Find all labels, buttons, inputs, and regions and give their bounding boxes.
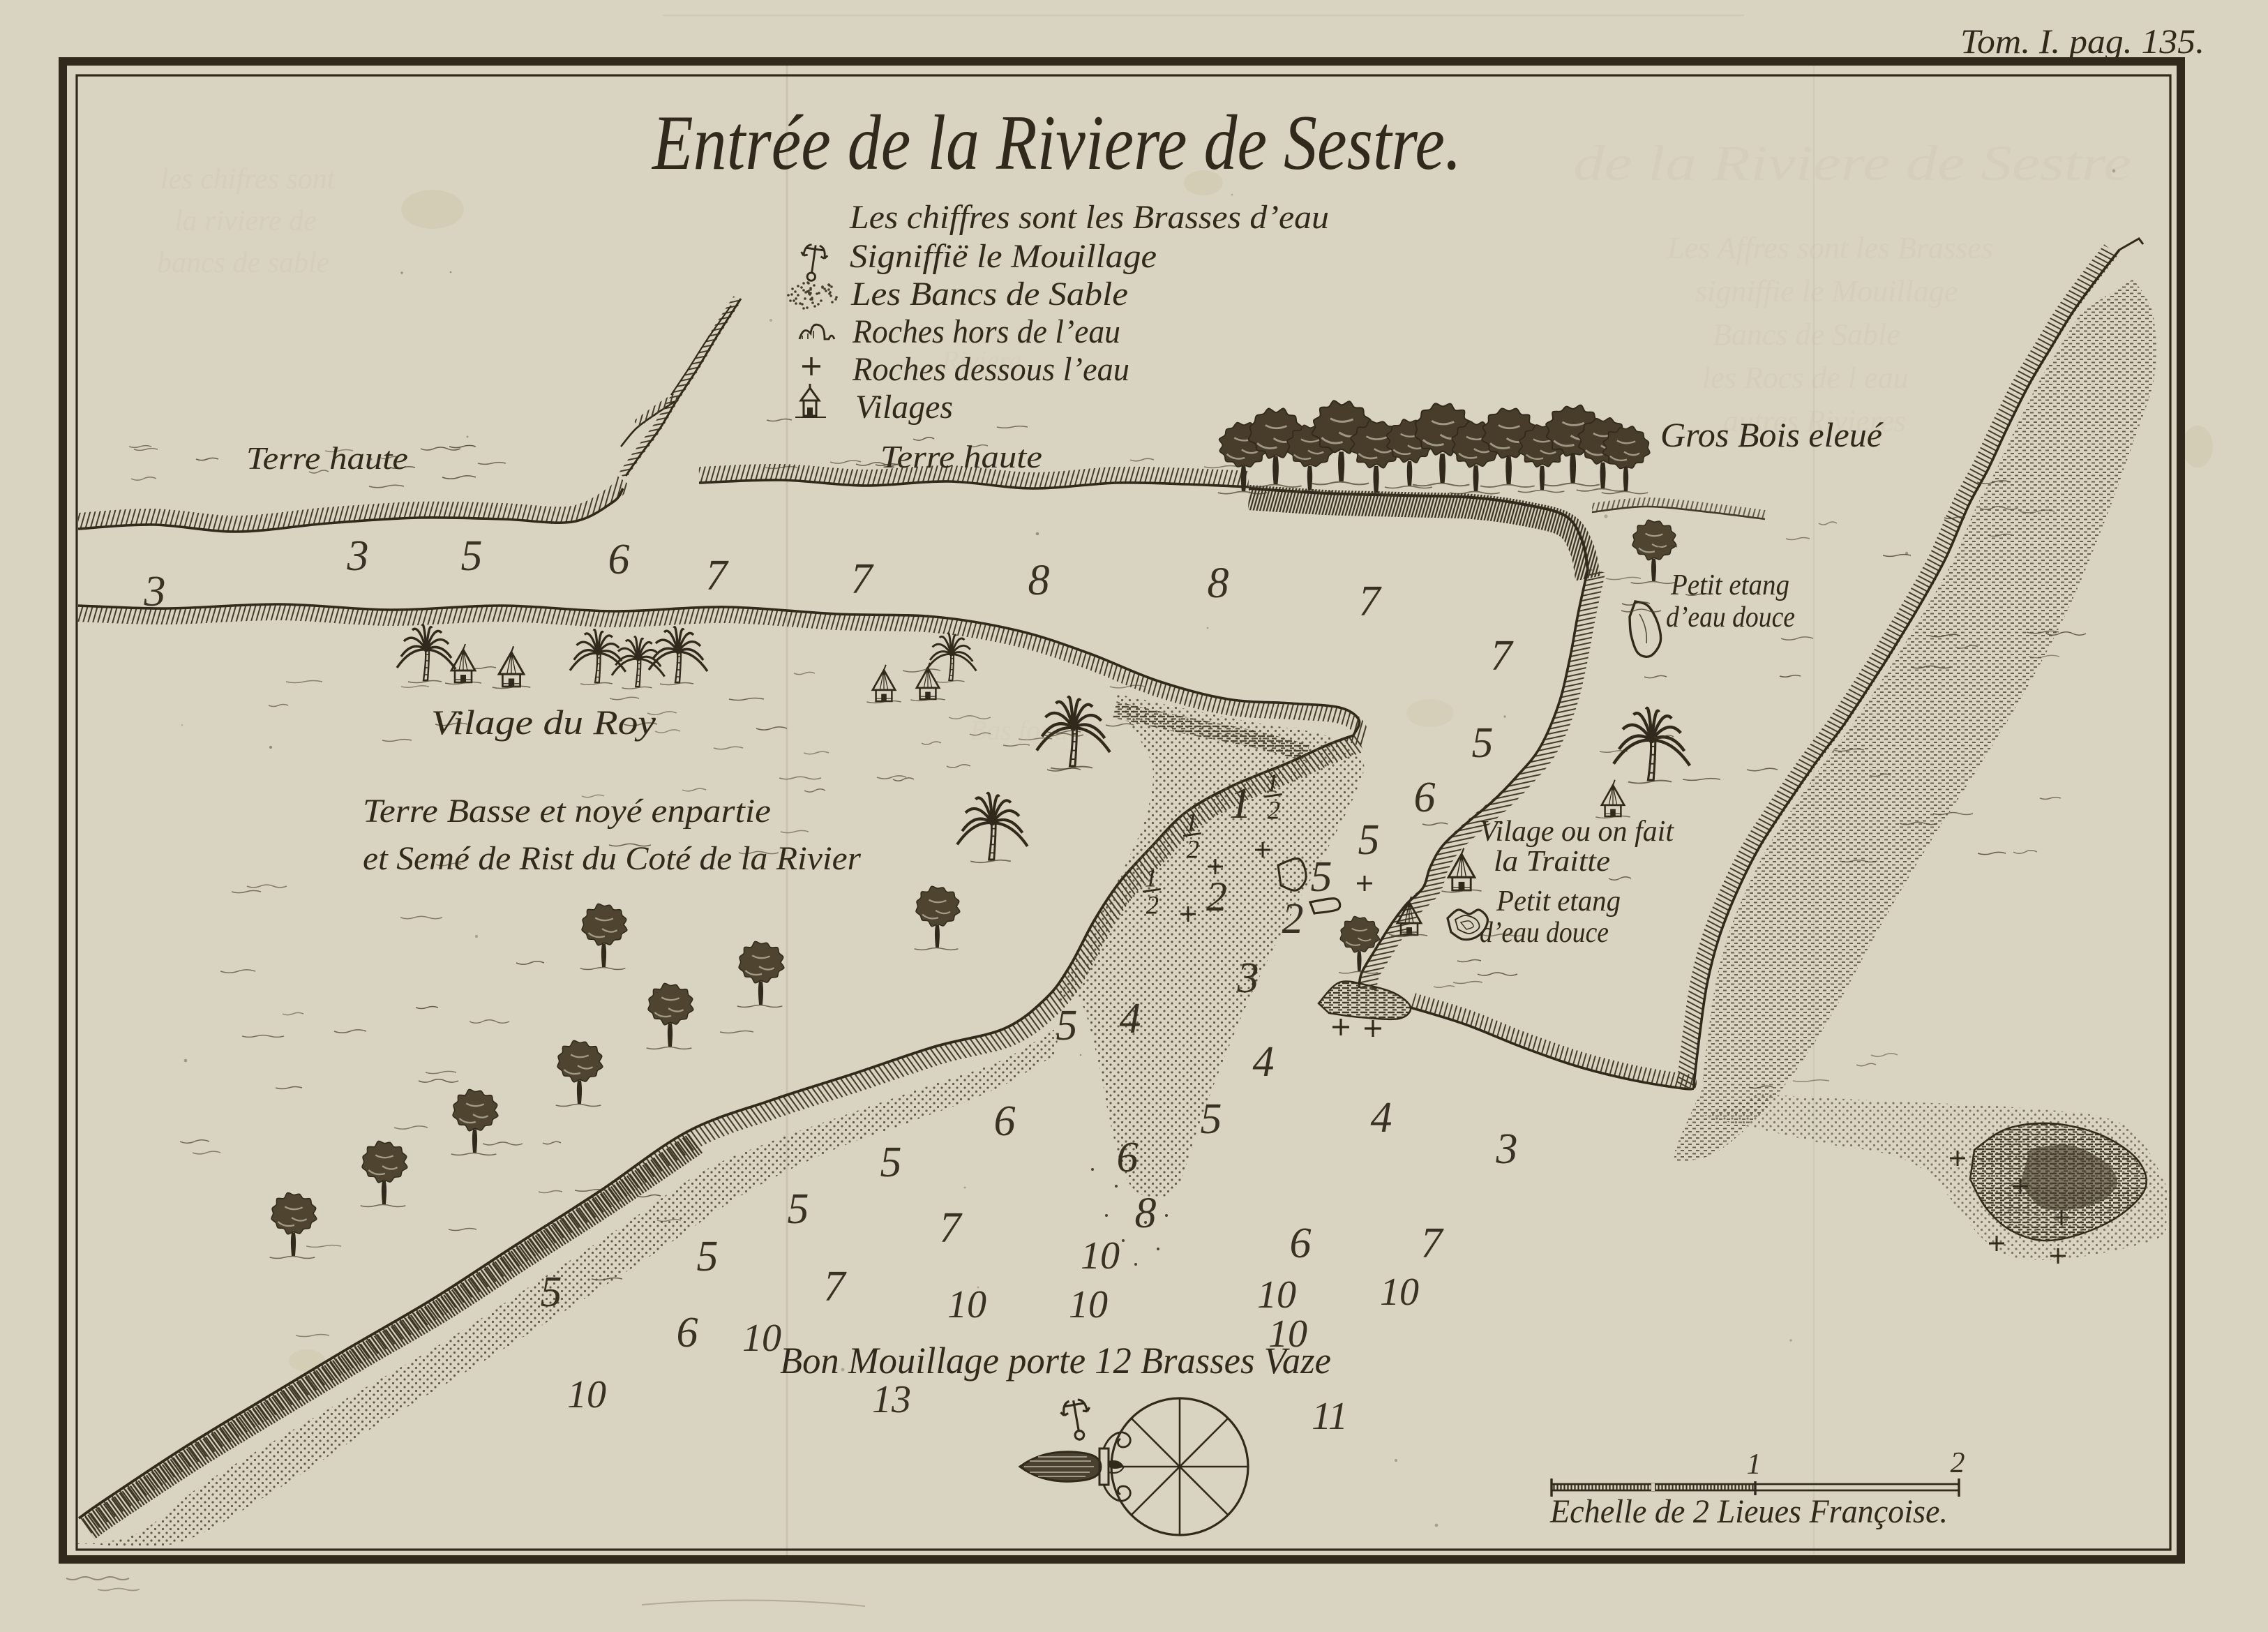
svg-text:5: 5 <box>788 1185 809 1233</box>
svg-text:les Rocs de l eau: les Rocs de l eau <box>1702 361 1909 395</box>
svg-text:Terre haute: Terre haute <box>880 439 1042 474</box>
svg-text:10: 10 <box>1069 1283 1108 1326</box>
svg-text:2: 2 <box>1951 1447 1965 1479</box>
svg-text:7: 7 <box>851 555 875 603</box>
svg-text:d’eau douce: d’eau douce <box>1666 601 1795 634</box>
svg-text:5: 5 <box>880 1139 902 1186</box>
svg-text:2: 2 <box>1206 874 1227 920</box>
svg-text:6: 6 <box>1290 1220 1312 1267</box>
svg-text:6: 6 <box>994 1098 1016 1145</box>
svg-text:Tom. I. pag. 135.: Tom. I. pag. 135. <box>1960 22 2205 61</box>
svg-text:10: 10 <box>947 1283 986 1326</box>
svg-text:1: 1 <box>1266 769 1279 798</box>
svg-text:Vilages: Vilages <box>855 389 953 426</box>
svg-text:10: 10 <box>567 1373 606 1416</box>
svg-text:Vilage du Roy: Vilage du Roy <box>431 703 656 742</box>
svg-text:2: 2 <box>1187 834 1199 863</box>
svg-text:bancs de sable: bancs de sable <box>157 247 329 279</box>
svg-text:3: 3 <box>347 532 369 580</box>
svg-text:7: 7 <box>1359 578 1383 625</box>
svg-text:6: 6 <box>1117 1134 1139 1181</box>
svg-text:Vilage ou on fait: Vilage ou on fait <box>1480 816 1674 848</box>
svg-text:les chifres sont: les chifres sont <box>160 163 336 195</box>
svg-text:3: 3 <box>144 568 166 615</box>
svg-text:10: 10 <box>1380 1271 1419 1314</box>
svg-text:et Semé de Rist du Coté de la: et Semé de Rist du Coté de la Rivier <box>363 840 861 877</box>
svg-text:10: 10 <box>1257 1273 1296 1317</box>
svg-text:5: 5 <box>1201 1095 1222 1143</box>
svg-text:7: 7 <box>940 1204 963 1252</box>
svg-text:Echelle de 2 Lieues Françoise.: Echelle de 2 Lieues Françoise. <box>1549 1493 1948 1530</box>
svg-text:6: 6 <box>677 1309 698 1356</box>
svg-text:Roches dessous l’eau: Roches dessous l’eau <box>852 351 1129 388</box>
svg-text:6: 6 <box>1414 774 1436 821</box>
svg-text:1: 1 <box>1747 1448 1762 1481</box>
svg-text:3: 3 <box>1496 1125 1518 1173</box>
svg-text:Les Affres sont les Brasses: Les Affres sont les Brasses <box>1667 231 1993 265</box>
svg-text:5: 5 <box>1056 1002 1078 1049</box>
svg-text:d’eau douce: d’eau douce <box>1480 917 1609 949</box>
svg-text:Terre haute: Terre haute <box>246 440 408 476</box>
svg-text:10: 10 <box>1081 1234 1120 1278</box>
svg-text:5: 5 <box>697 1233 719 1280</box>
svg-text:Petit etang: Petit etang <box>1670 569 1789 601</box>
svg-text:1: 1 <box>1229 778 1252 828</box>
svg-text:Petit etang: Petit etang <box>1496 885 1621 918</box>
svg-text:Signiffië le Mouillage: Signiffië le Mouillage <box>850 238 1157 275</box>
svg-text:4: 4 <box>1253 1038 1275 1086</box>
svg-text:10: 10 <box>742 1317 781 1360</box>
svg-text:1: 1 <box>1185 808 1198 837</box>
svg-text:5: 5 <box>541 1268 562 1316</box>
svg-text:5: 5 <box>1311 853 1332 901</box>
svg-text:Terre Basse et noyé enpartie: Terre Basse et noyé enpartie <box>363 793 771 830</box>
svg-text:Bon Mouillage porte 12 Brasses: Bon Mouillage porte 12 Brasses Vaze <box>780 1340 1331 1382</box>
svg-text:7: 7 <box>1421 1220 1445 1267</box>
svg-text:de la Riviere de Sestre: de la Riviere de Sestre <box>1573 135 2131 191</box>
svg-text:7: 7 <box>1491 632 1515 680</box>
svg-text:2: 2 <box>1146 890 1159 919</box>
svg-text:la riviere de: la riviere de <box>174 205 317 237</box>
svg-text:8: 8 <box>1028 557 1050 604</box>
svg-text:1: 1 <box>1145 864 1157 892</box>
svg-text:Bancs de Sable: Bancs de Sable <box>1713 317 1900 352</box>
svg-text:Entrée de la Riviere de Sestre: Entrée de la Riviere de Sestre. <box>651 100 1462 186</box>
svg-text:11: 11 <box>1312 1395 1348 1438</box>
svg-text:13: 13 <box>872 1378 911 1421</box>
svg-text:10: 10 <box>1268 1312 1307 1356</box>
svg-text:Les chiffres sont les Brasses: Les chiffres sont les Brasses d’eau <box>849 199 1329 236</box>
svg-text:6: 6 <box>608 536 630 583</box>
svg-text:Les Bancs de Sable: Les Bancs de Sable <box>850 276 1128 313</box>
svg-text:7: 7 <box>824 1263 848 1310</box>
svg-text:Roches hors de l’eau: Roches hors de l’eau <box>852 313 1120 350</box>
svg-text:8: 8 <box>1208 560 1229 607</box>
svg-text:2: 2 <box>1282 895 1304 943</box>
svg-text:5: 5 <box>461 532 483 580</box>
svg-text:8: 8 <box>1135 1190 1157 1237</box>
svg-text:3: 3 <box>1237 955 1259 1002</box>
svg-text:2: 2 <box>1268 795 1280 824</box>
svg-text:la Traitte: la Traitte <box>1494 846 1610 878</box>
svg-text:4: 4 <box>1120 995 1141 1042</box>
svg-text:signiffie le Mouillage: signiffie le Mouillage <box>1695 274 1958 308</box>
svg-text:5: 5 <box>1358 816 1380 864</box>
svg-text:5: 5 <box>1472 719 1494 767</box>
svg-text:7: 7 <box>706 552 730 599</box>
svg-text:Gros Bois eleué: Gros Bois eleué <box>1660 415 1884 454</box>
svg-text:4: 4 <box>1371 1094 1392 1141</box>
